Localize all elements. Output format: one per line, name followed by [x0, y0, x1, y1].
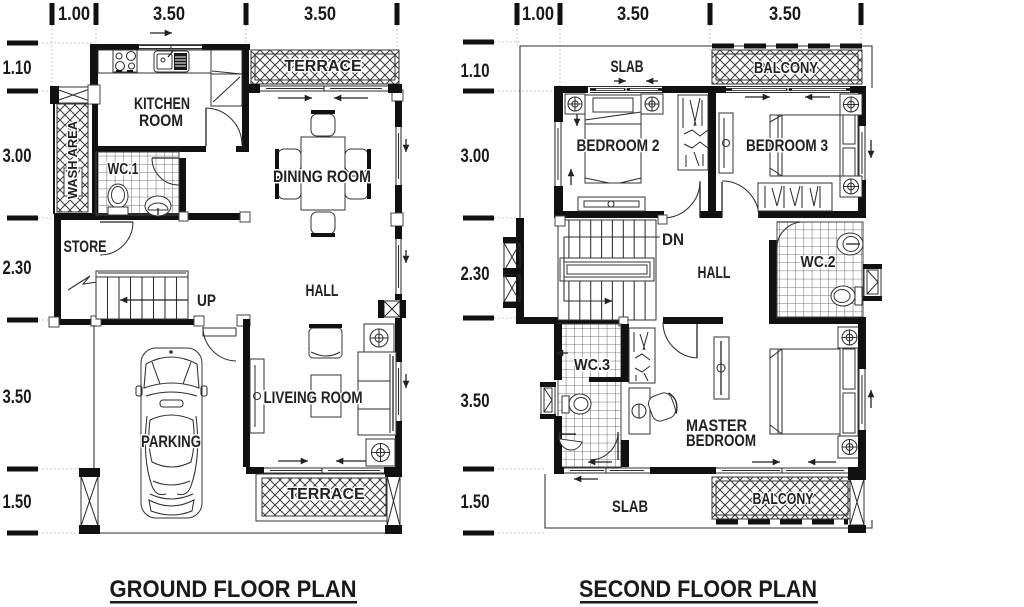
svg-text:3.50: 3.50 [153, 4, 185, 25]
svg-text:ROOM: ROOM [139, 111, 183, 130]
svg-text:3.50: 3.50 [3, 387, 32, 408]
svg-text:SECOND FLOOR PLAN: SECOND FLOOR PLAN [579, 576, 817, 603]
svg-text:BEDROOM 2: BEDROOM 2 [577, 136, 660, 155]
svg-text:WC.3: WC.3 [574, 357, 610, 374]
svg-text:3.00: 3.00 [3, 146, 32, 167]
svg-text:TERRACE: TERRACE [284, 58, 362, 75]
svg-text:TERRACE: TERRACE [287, 486, 365, 503]
svg-text:BALCONY: BALCONY [753, 491, 814, 508]
svg-text:DINING ROOM: DINING ROOM [273, 167, 371, 186]
svg-text:3.50: 3.50 [617, 4, 649, 25]
svg-text:BALCONY: BALCONY [754, 60, 818, 77]
svg-text:1.50: 1.50 [3, 492, 32, 513]
svg-text:BEDROOM 3: BEDROOM 3 [746, 136, 828, 155]
svg-text:GROUND FLOOR PLAN: GROUND FLOOR PLAN [110, 576, 357, 603]
svg-text:WC.2: WC.2 [801, 254, 836, 271]
svg-text:3.50: 3.50 [304, 4, 336, 25]
svg-text:1.10: 1.10 [461, 61, 490, 82]
svg-text:SLAB: SLAB [611, 57, 644, 76]
svg-text:SLAB: SLAB [612, 497, 648, 516]
svg-text:UP: UP [197, 291, 216, 310]
svg-text:1.00: 1.00 [58, 4, 90, 25]
svg-text:PARKING: PARKING [141, 432, 201, 451]
svg-text:3.50: 3.50 [769, 4, 801, 25]
svg-text:1.00: 1.00 [522, 4, 554, 25]
svg-text:2.30: 2.30 [3, 258, 32, 279]
svg-text:3.50: 3.50 [461, 391, 490, 412]
svg-text:1.10: 1.10 [3, 58, 32, 79]
svg-text:1.50: 1.50 [461, 492, 490, 513]
svg-text:STORE: STORE [64, 237, 107, 256]
svg-text:DN: DN [662, 230, 684, 249]
svg-text:WC.1: WC.1 [108, 161, 139, 178]
svg-text:WASH AREA: WASH AREA [65, 120, 80, 199]
svg-text:3.00: 3.00 [461, 146, 490, 167]
svg-text:BEDROOM: BEDROOM [686, 431, 756, 450]
svg-text:HALL: HALL [698, 263, 731, 282]
svg-text:2.30: 2.30 [461, 264, 490, 285]
svg-text:LIVEING ROOM: LIVEING ROOM [264, 388, 363, 407]
svg-text:HALL: HALL [306, 281, 339, 300]
